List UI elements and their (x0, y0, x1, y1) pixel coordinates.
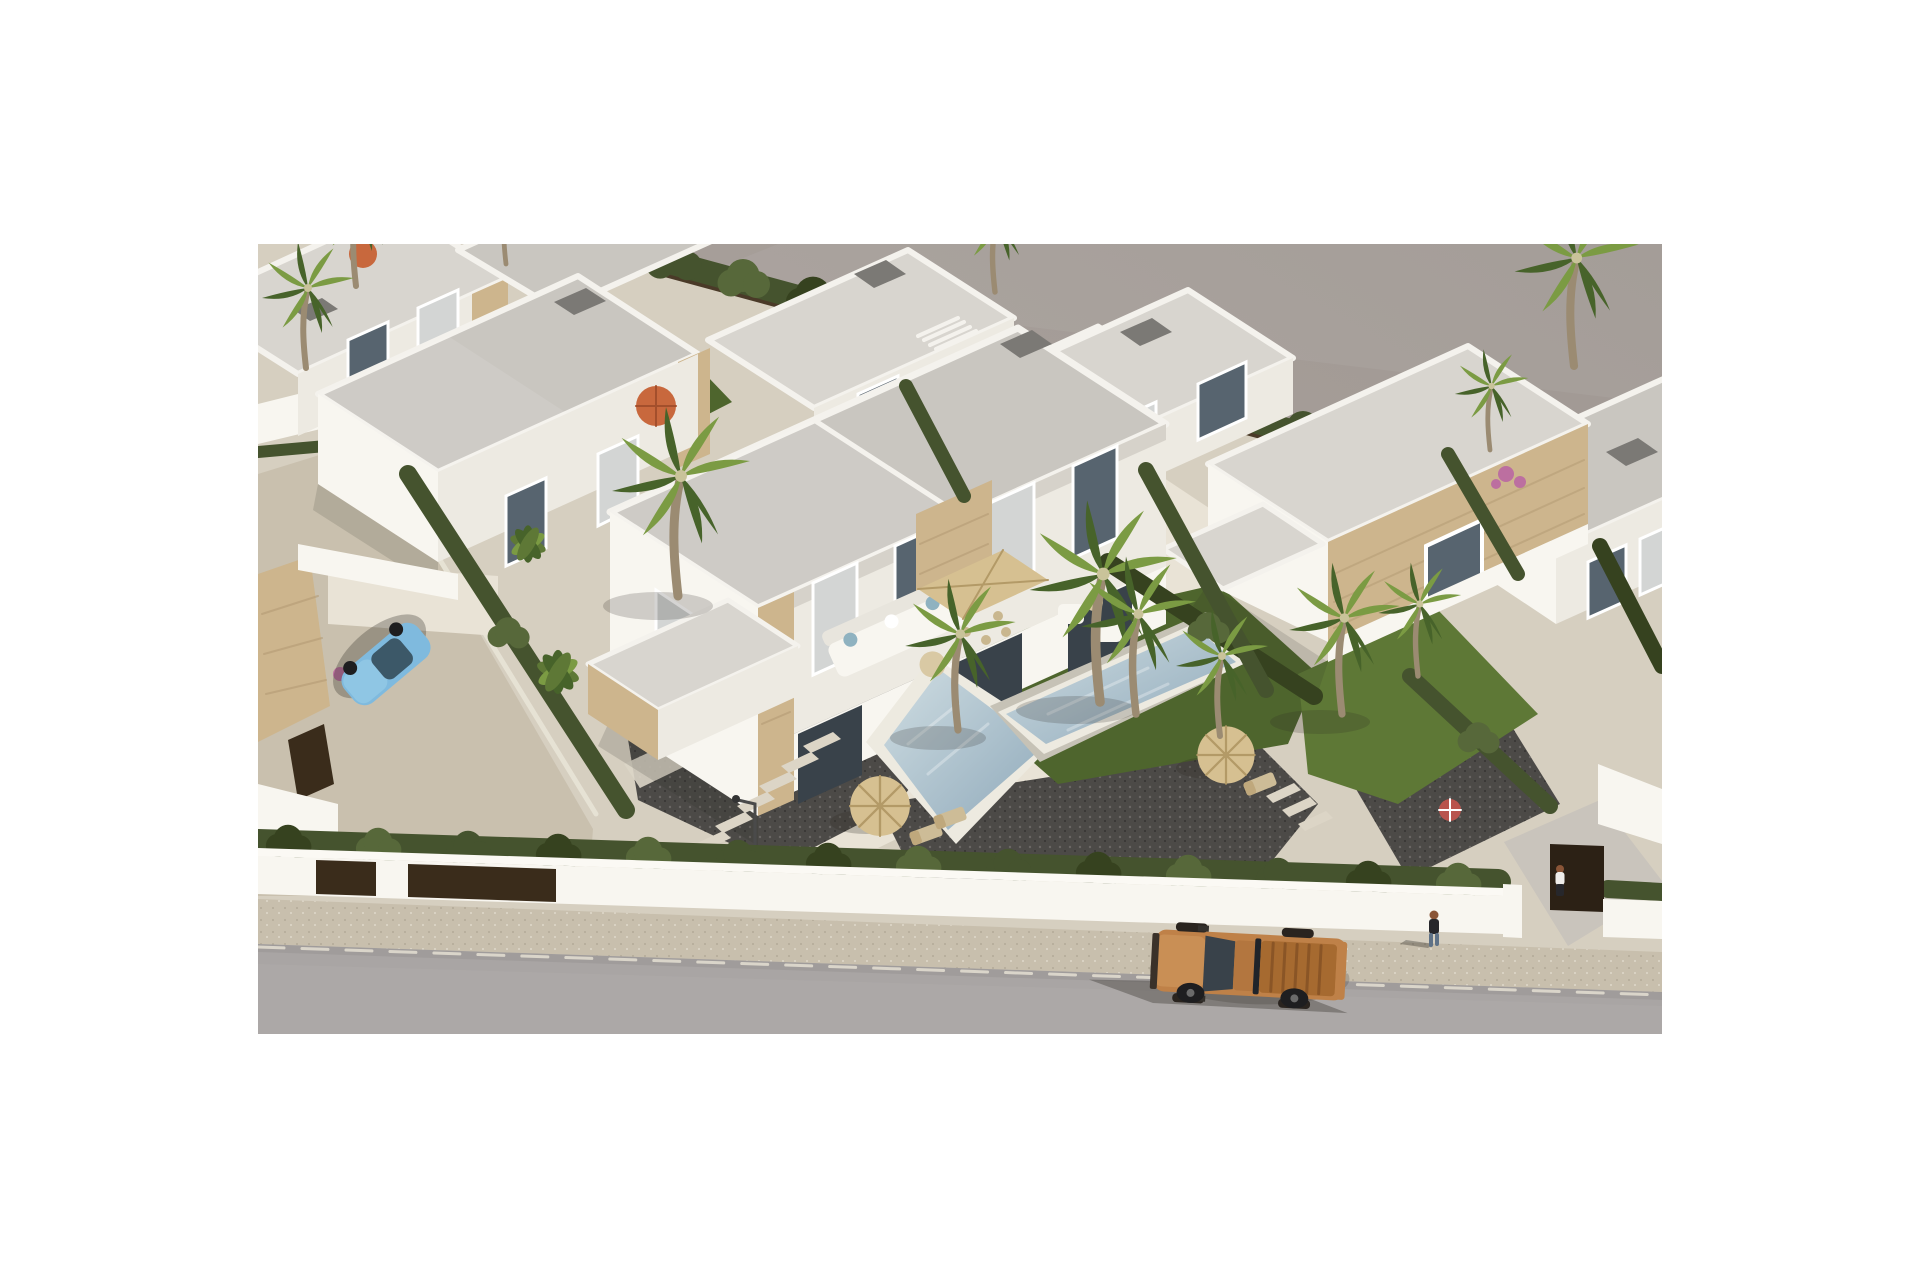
driveway-gate (408, 864, 556, 902)
gate-visitor (1556, 865, 1565, 896)
truck-windshield (1203, 936, 1236, 993)
pedestrian-gate (316, 860, 376, 896)
orange-umbrella-back (636, 386, 676, 426)
aerial-render-photo (258, 244, 1662, 1034)
page-canvas (0, 0, 1920, 1280)
red-parasol-right (1439, 799, 1461, 821)
villa-development-render (258, 244, 1662, 1034)
truck-hood (1154, 934, 1207, 989)
